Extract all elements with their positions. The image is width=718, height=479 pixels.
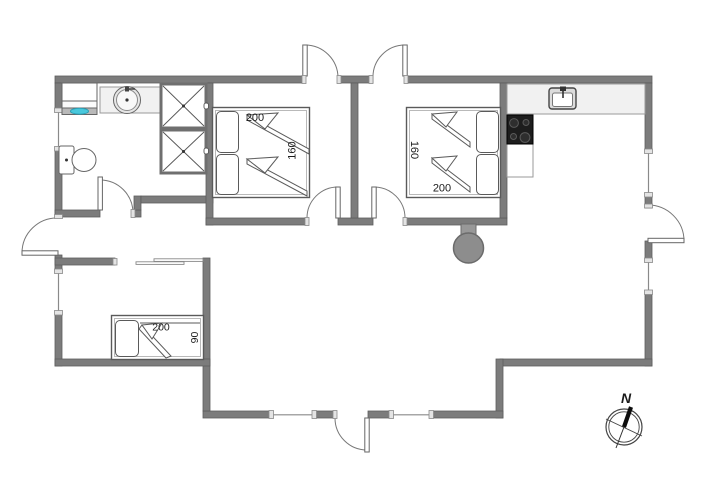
walls bbox=[55, 76, 652, 418]
bedroom1-bed-length-label: 200 bbox=[246, 112, 264, 124]
compass-north-label: N bbox=[621, 390, 632, 406]
bedroom-1: 200 160 bbox=[213, 108, 310, 198]
bathroom-fixtures bbox=[59, 83, 209, 174]
floor-plan-drawing: 200 160 160 200 200 90 bbox=[0, 0, 718, 479]
hall-exterior-door bbox=[22, 218, 58, 255]
window-south-1 bbox=[269, 411, 317, 419]
bedroom2-terrace-door bbox=[373, 45, 407, 78]
kitchen-sink-icon bbox=[549, 87, 576, 110]
window-bathroom-west bbox=[55, 108, 63, 151]
toilet-icon bbox=[59, 146, 96, 174]
bedroom2-door bbox=[372, 187, 405, 218]
bedroom1-door bbox=[307, 187, 340, 218]
bedroom-3: 200 90 bbox=[112, 316, 204, 360]
east-terrace-door bbox=[648, 205, 684, 243]
washbasin-icon bbox=[100, 87, 162, 114]
cooktop-icon bbox=[507, 115, 533, 144]
bathroom-door bbox=[98, 177, 133, 213]
bedroom3-bed-width-label: 90 bbox=[189, 332, 201, 344]
bedroom2-bed-length-label: 200 bbox=[433, 183, 451, 195]
floor-plan: 200 160 160 200 200 90 bbox=[0, 0, 718, 479]
bedroom1-bed-width-label: 160 bbox=[287, 141, 299, 159]
window-bedroom3-west bbox=[55, 269, 63, 315]
bedroom-2: 160 200 bbox=[407, 108, 501, 198]
bedroom3-bed-length-label: 200 bbox=[152, 322, 170, 334]
sliding-door bbox=[136, 259, 203, 265]
bedroom2-bed-width-label: 160 bbox=[408, 141, 420, 159]
cabinet-icon-bottom bbox=[161, 130, 209, 173]
kitchen bbox=[507, 84, 645, 177]
window-east-2 bbox=[645, 258, 653, 295]
cabinet-icon-top bbox=[161, 84, 209, 128]
compass-rose-icon: N bbox=[606, 390, 642, 448]
window-east-1 bbox=[645, 149, 653, 197]
washing-machine-icon bbox=[62, 83, 97, 115]
bedroom1-terrace-door bbox=[303, 45, 338, 78]
main-entrance-door bbox=[335, 418, 369, 452]
wood-stove-icon bbox=[454, 224, 484, 263]
window-south-2 bbox=[389, 411, 434, 419]
